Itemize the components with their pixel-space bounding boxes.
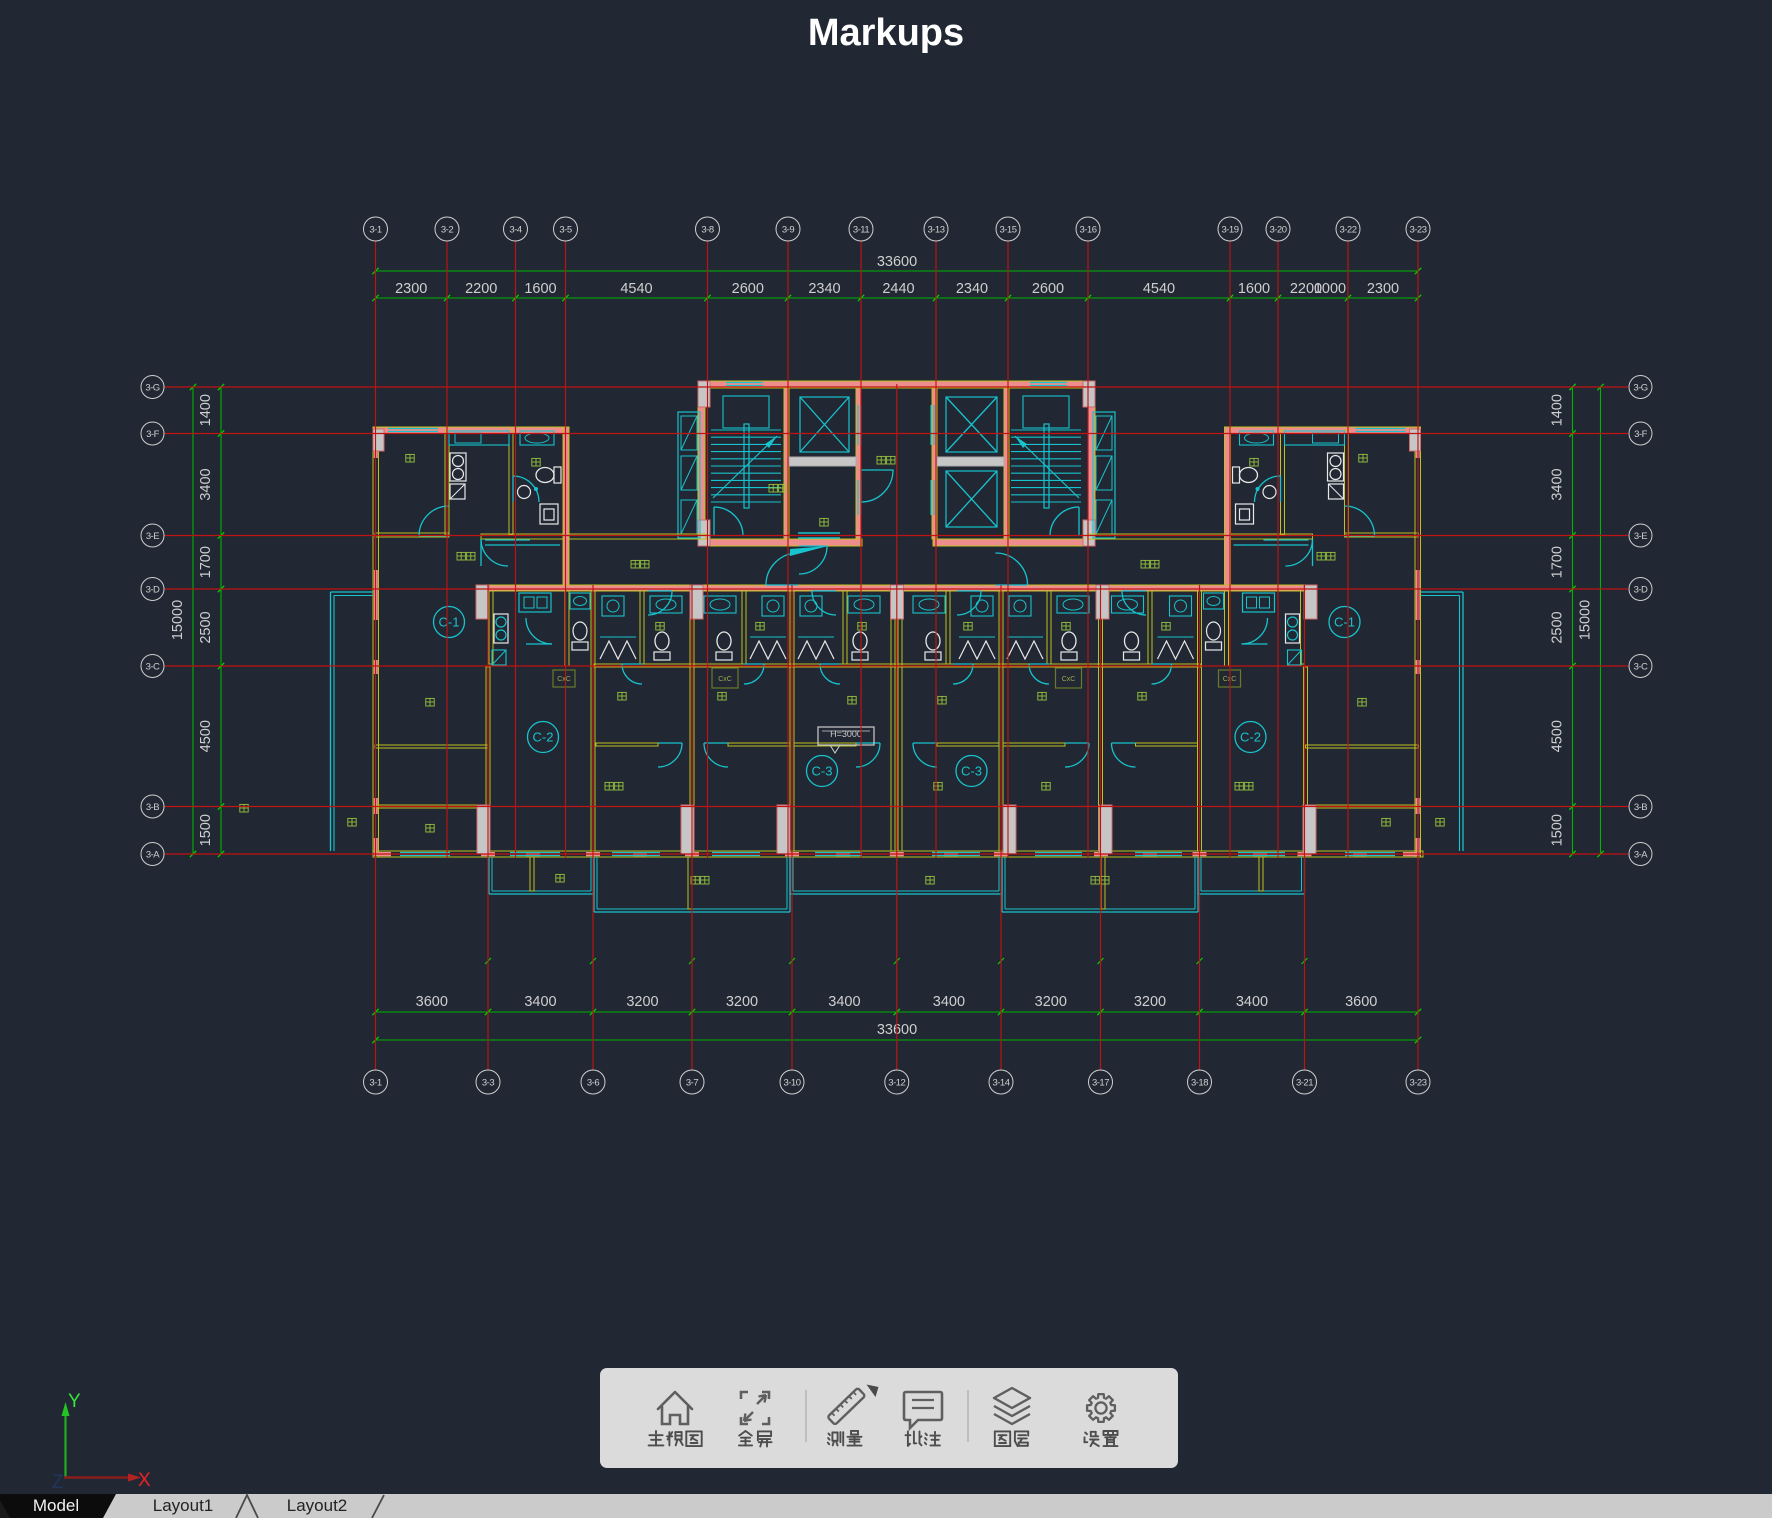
svg-text:3-18: 3-18 bbox=[1191, 1078, 1208, 1089]
svg-text:2440: 2440 bbox=[882, 281, 914, 297]
svg-text:3200: 3200 bbox=[1134, 994, 1166, 1010]
svg-text:3-2: 3-2 bbox=[441, 225, 453, 236]
svg-text:3-A: 3-A bbox=[146, 850, 160, 861]
svg-text:3-E: 3-E bbox=[146, 531, 159, 542]
svg-text:2340: 2340 bbox=[808, 281, 840, 297]
svg-text:3-B: 3-B bbox=[146, 802, 159, 813]
svg-text:2340: 2340 bbox=[956, 281, 988, 297]
svg-text:3-16: 3-16 bbox=[1079, 225, 1096, 236]
svg-text:3-D: 3-D bbox=[1634, 585, 1648, 596]
svg-text:CxC: CxC bbox=[1062, 676, 1076, 683]
svg-text:1500: 1500 bbox=[198, 814, 214, 846]
svg-text:3-F: 3-F bbox=[146, 429, 159, 440]
svg-text:3-3: 3-3 bbox=[482, 1078, 494, 1089]
svg-text:Y: Y bbox=[68, 1391, 81, 1412]
svg-text:3400: 3400 bbox=[828, 994, 860, 1010]
svg-text:3-E: 3-E bbox=[1634, 531, 1647, 542]
svg-text:3-23: 3-23 bbox=[1409, 1078, 1426, 1089]
svg-text:1500: 1500 bbox=[1550, 814, 1566, 846]
svg-text:Layout2: Layout2 bbox=[287, 1496, 348, 1515]
svg-text:2500: 2500 bbox=[198, 611, 214, 643]
svg-text:3200: 3200 bbox=[726, 994, 758, 1010]
svg-text:3-8: 3-8 bbox=[701, 225, 713, 236]
svg-text:2300: 2300 bbox=[395, 281, 427, 297]
svg-text:3-14: 3-14 bbox=[992, 1078, 1009, 1089]
svg-text:C-1: C-1 bbox=[439, 615, 460, 630]
svg-text:3-11: 3-11 bbox=[853, 225, 870, 236]
svg-text:3-A: 3-A bbox=[1634, 850, 1648, 861]
svg-text:3-D: 3-D bbox=[146, 585, 160, 596]
svg-text:Z: Z bbox=[52, 1472, 64, 1493]
svg-text:CxC: CxC bbox=[557, 676, 571, 683]
svg-text:3-23: 3-23 bbox=[1409, 225, 1426, 236]
svg-text:3-B: 3-B bbox=[1634, 802, 1647, 813]
svg-text:1600: 1600 bbox=[1238, 281, 1270, 297]
svg-text:3-9: 3-9 bbox=[782, 225, 794, 236]
svg-text:4500: 4500 bbox=[1550, 720, 1566, 752]
svg-text:1400: 1400 bbox=[1550, 394, 1566, 426]
svg-text:3-1: 3-1 bbox=[369, 225, 381, 236]
svg-text:C-3: C-3 bbox=[812, 764, 833, 779]
svg-text:3-G: 3-G bbox=[145, 383, 159, 394]
svg-text:C-2: C-2 bbox=[1240, 730, 1261, 745]
svg-text:2200: 2200 bbox=[465, 281, 497, 297]
svg-text:3-1: 3-1 bbox=[369, 1078, 381, 1089]
svg-text:3-19: 3-19 bbox=[1221, 225, 1238, 236]
svg-text:3-C: 3-C bbox=[146, 662, 160, 673]
svg-text:4540: 4540 bbox=[620, 281, 652, 297]
svg-text:3600: 3600 bbox=[416, 994, 448, 1010]
svg-text:3-5: 3-5 bbox=[559, 225, 571, 236]
svg-text:X: X bbox=[138, 1470, 151, 1491]
svg-text:3400: 3400 bbox=[198, 468, 214, 500]
svg-text:Layout1: Layout1 bbox=[153, 1496, 214, 1515]
svg-text:3-6: 3-6 bbox=[587, 1078, 599, 1089]
svg-text:3400: 3400 bbox=[933, 994, 965, 1010]
svg-text:1600: 1600 bbox=[524, 281, 556, 297]
svg-text:15000: 15000 bbox=[1578, 600, 1594, 640]
svg-text:3-C: 3-C bbox=[1634, 662, 1648, 673]
svg-text:2500: 2500 bbox=[1550, 611, 1566, 643]
svg-text:3-20: 3-20 bbox=[1269, 225, 1286, 236]
svg-text:C-3: C-3 bbox=[961, 764, 982, 779]
svg-text:3-15: 3-15 bbox=[999, 225, 1016, 236]
svg-text:Model: Model bbox=[33, 1496, 79, 1515]
svg-text:CxC: CxC bbox=[718, 676, 732, 683]
svg-text:3400: 3400 bbox=[1550, 468, 1566, 500]
svg-text:3400: 3400 bbox=[524, 994, 556, 1010]
svg-text:1700: 1700 bbox=[1550, 546, 1566, 578]
svg-text:2300: 2300 bbox=[1367, 281, 1399, 297]
svg-text:1400: 1400 bbox=[198, 394, 214, 426]
svg-text:3-10: 3-10 bbox=[783, 1078, 800, 1089]
svg-text:3-12: 3-12 bbox=[888, 1078, 905, 1089]
svg-text:3-G: 3-G bbox=[1633, 383, 1647, 394]
svg-text:3200: 3200 bbox=[626, 994, 658, 1010]
svg-text:3-21: 3-21 bbox=[1296, 1078, 1313, 1089]
svg-text:C-1: C-1 bbox=[1334, 615, 1355, 630]
svg-text:2600: 2600 bbox=[1032, 281, 1064, 297]
svg-text:4540: 4540 bbox=[1143, 281, 1175, 297]
svg-text:33600: 33600 bbox=[877, 254, 917, 270]
svg-text:3-17: 3-17 bbox=[1092, 1078, 1109, 1089]
svg-text:3-F: 3-F bbox=[1634, 429, 1647, 440]
svg-text:2600: 2600 bbox=[732, 281, 764, 297]
svg-text:4500: 4500 bbox=[198, 720, 214, 752]
svg-text:3600: 3600 bbox=[1345, 994, 1377, 1010]
svg-text:C-2: C-2 bbox=[533, 730, 554, 745]
svg-text:3200: 3200 bbox=[1035, 994, 1067, 1010]
svg-text:H=3000: H=3000 bbox=[830, 729, 862, 739]
svg-text:1000: 1000 bbox=[1314, 281, 1346, 297]
svg-text:3-7: 3-7 bbox=[686, 1078, 698, 1089]
svg-text:3-4: 3-4 bbox=[509, 225, 521, 236]
svg-text:3-13: 3-13 bbox=[927, 225, 944, 236]
svg-text:3-22: 3-22 bbox=[1339, 225, 1356, 236]
svg-text:3400: 3400 bbox=[1236, 994, 1268, 1010]
svg-text:1700: 1700 bbox=[198, 546, 214, 578]
svg-text:15000: 15000 bbox=[170, 600, 186, 640]
